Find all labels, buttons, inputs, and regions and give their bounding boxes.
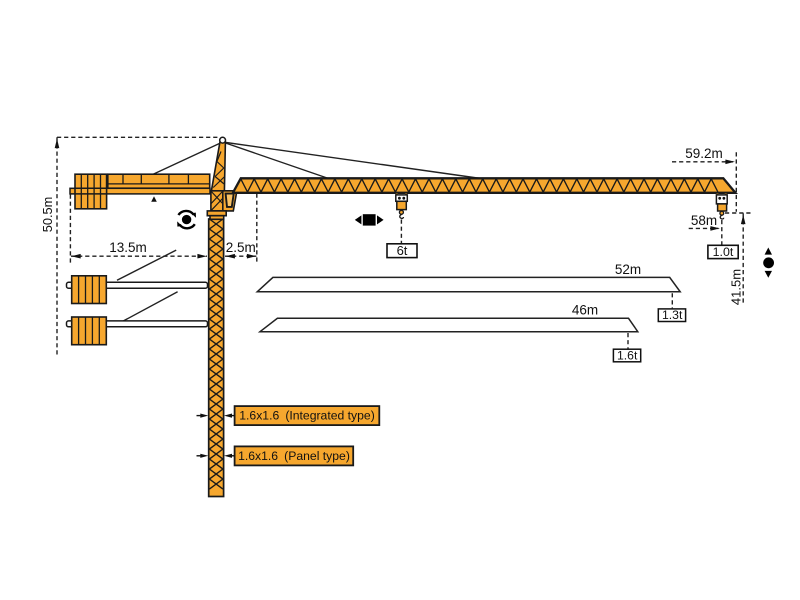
svg-text:2.5m: 2.5m (226, 240, 256, 255)
svg-text:13.5m: 13.5m (109, 240, 147, 255)
svg-text:1.3t: 1.3t (662, 308, 683, 322)
svg-text:1.6x1.6 (Integrated type): 1.6x1.6 (Integrated type) (239, 409, 375, 423)
svg-text:59.2m: 59.2m (685, 146, 723, 161)
svg-text:58m: 58m (691, 213, 717, 228)
svg-text:52m: 52m (615, 262, 641, 277)
svg-text:50.5m: 50.5m (40, 197, 55, 233)
svg-text:1.6x1.6 (Panel type): 1.6x1.6 (Panel type) (238, 449, 350, 463)
svg-text:46m: 46m (572, 302, 598, 317)
svg-text:1.6t: 1.6t (617, 349, 638, 363)
svg-text:6t: 6t (397, 243, 408, 258)
svg-text:1.0t: 1.0t (713, 245, 734, 259)
svg-text:41.5m: 41.5m (728, 269, 743, 305)
